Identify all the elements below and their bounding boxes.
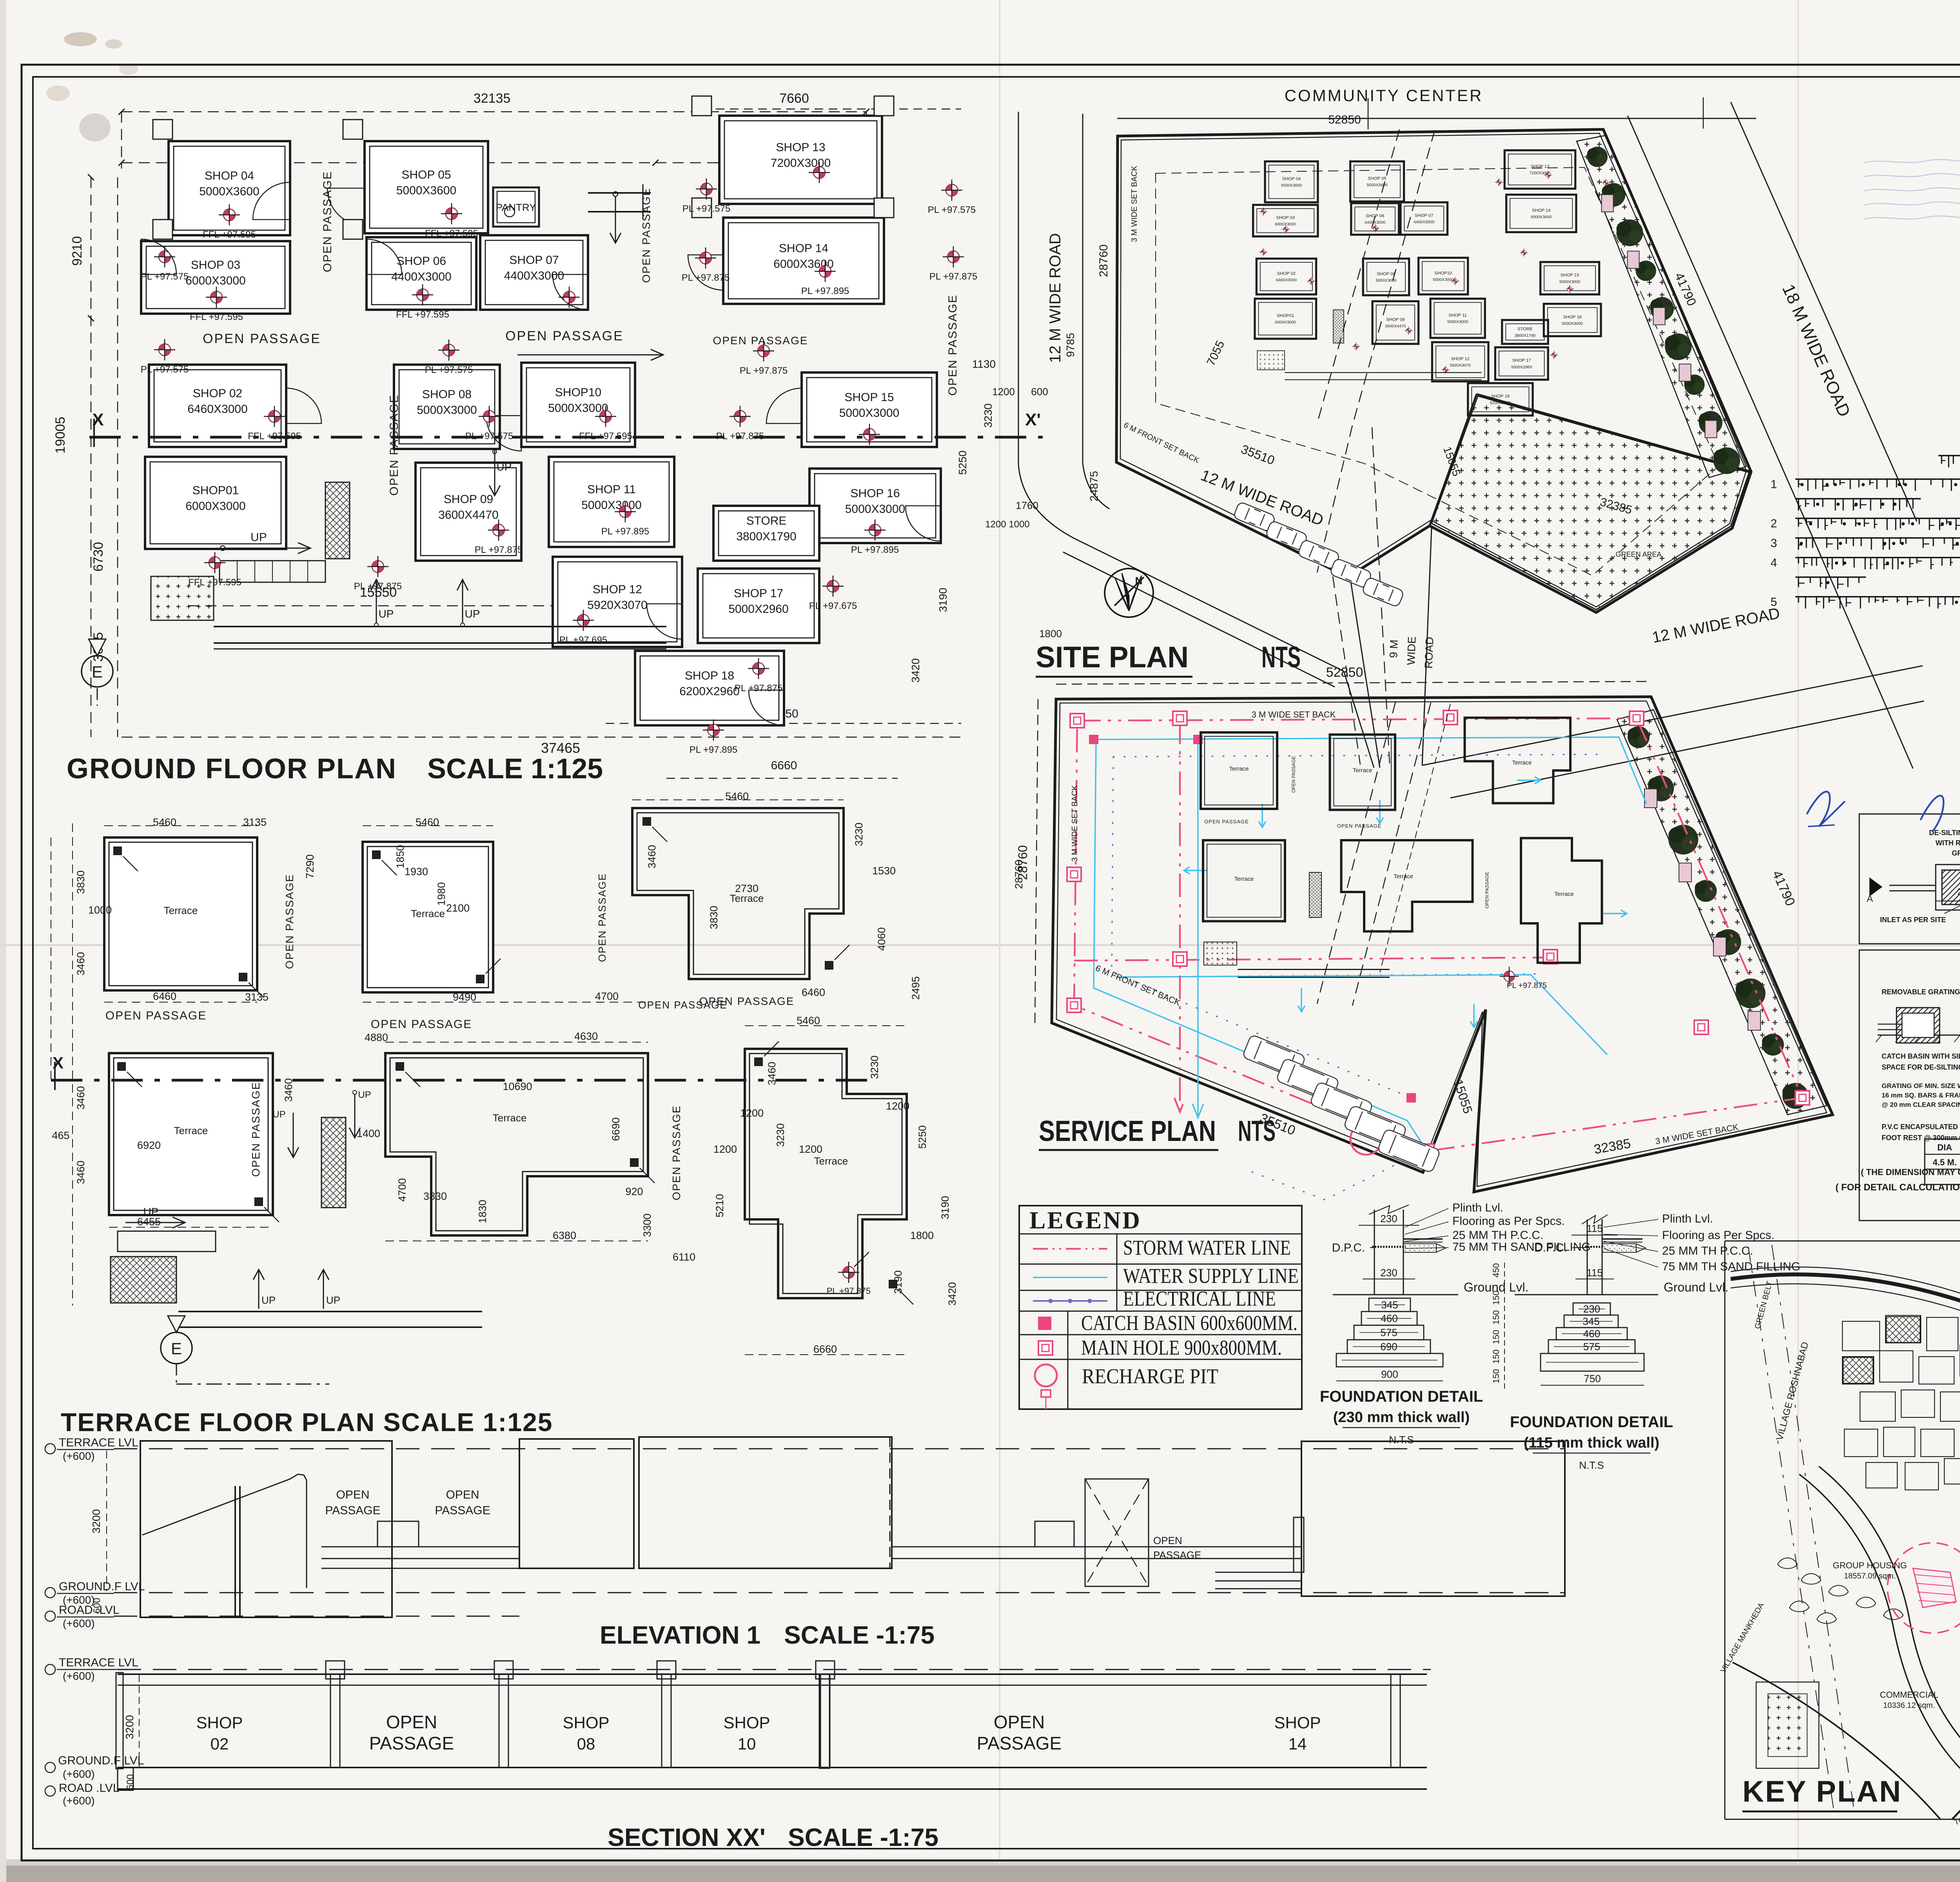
svg-text:SHOP 03: SHOP 03 [191,259,240,272]
svg-text:6730: 6730 [91,542,106,572]
svg-text:OPEN PASSAGE: OPEN PASSAGE [203,331,321,346]
svg-text:6000X3000: 6000X3000 [185,500,246,513]
svg-text:6660: 6660 [771,759,797,772]
svg-text:OPEN PASSAGE: OPEN PASSAGE [283,874,296,969]
svg-text:N.T.S: N.T.S [1579,1459,1604,1471]
svg-text:COMMUNITY CENTER: COMMUNITY CENTER [1285,86,1483,105]
svg-text:PL +97.575: PL +97.575 [141,364,189,375]
svg-text:UP: UP [261,1294,276,1306]
svg-text:OPEN PASSAGE: OPEN PASSAGE [105,1009,207,1022]
svg-text:OPEN: OPEN [386,1712,437,1732]
svg-text:PASSAGE: PASSAGE [977,1733,1062,1753]
svg-text:3600X4470: 3600X4470 [1385,324,1406,329]
svg-text:PL +97.575: PL +97.575 [928,205,976,215]
svg-text:(+600): (+600) [63,1795,95,1807]
svg-text:PL +97.875: PL +97.875 [1507,981,1547,990]
svg-text:3190: 3190 [937,588,949,612]
svg-text:STORE: STORE [1517,327,1533,331]
svg-text:PL +97.875: PL +97.875 [827,1286,871,1296]
svg-text:52850: 52850 [1326,665,1363,680]
svg-text:SHOP 02: SHOP 02 [193,387,242,400]
svg-text:1760: 1760 [1016,500,1038,511]
svg-text:600: 600 [125,1774,136,1790]
svg-text:FFL +97.595: FFL +97.595 [203,229,256,240]
svg-text:25 MM TH P.C.C.: 25 MM TH P.C.C. [1452,1229,1543,1242]
svg-text:TERRACE LVL: TERRACE LVL [59,1436,138,1449]
svg-text:5000X3600: 5000X3600 [1281,183,1302,188]
svg-text:SHOP 09: SHOP 09 [444,493,493,506]
svg-text:Terrace: Terrace [174,1125,208,1137]
svg-text:ROAD .LVL: ROAD .LVL [59,1782,120,1795]
svg-text:FFL +97.595: FFL +97.595 [190,312,243,322]
svg-text:3600X4470: 3600X4470 [438,509,499,521]
svg-text:SHOP01: SHOP01 [1277,314,1294,318]
svg-text:FOUNDATION DETAIL: FOUNDATION DETAIL [1510,1413,1673,1431]
svg-text:4880: 4880 [365,1032,388,1043]
svg-text:18557.09 sqm.: 18557.09 sqm. [1844,1572,1896,1580]
svg-text:OPEN PASSAGE: OPEN PASSAGE [638,999,727,1011]
svg-text:GRATING: GRATING [1952,849,1960,857]
svg-text:6110: 6110 [673,1251,695,1263]
svg-text:3800X1790: 3800X1790 [736,530,797,543]
svg-text:ELECTRICAL LINE: ELECTRICAL LINE [1123,1287,1276,1310]
svg-text:SHOP 12: SHOP 12 [1451,356,1470,361]
svg-text:OPEN PASSAGE: OPEN PASSAGE [670,1105,682,1201]
svg-text:(230 mm thick wall): (230 mm thick wall) [1333,1409,1470,1426]
svg-text:5460: 5460 [153,816,176,828]
svg-text:FFL +97.595: FFL +97.595 [579,431,632,441]
svg-text:32135: 32135 [474,91,511,106]
svg-text:E: E [92,663,103,681]
svg-text:D.P.C.: D.P.C. [1332,1241,1365,1254]
svg-text:ELEVATION 1: ELEVATION 1 [600,1621,760,1649]
svg-text:PL +97.875: PL +97.875 [716,431,764,441]
svg-text:6200X2960: 6200X2960 [679,685,740,698]
svg-text:230: 230 [1380,1267,1397,1279]
svg-text:5000X3000: 5000X3000 [1562,322,1583,326]
svg-text:PL +97.895: PL +97.895 [690,745,738,755]
svg-text:PL +97.875: PL +97.875 [354,581,402,592]
svg-text:2100: 2100 [446,902,470,914]
svg-text:( THE DIMENSION MAY CHANGE AS/: ( THE DIMENSION MAY CHANGE AS/ SITE COND… [1861,1167,1960,1177]
svg-text:6000X3000: 6000X3000 [1275,222,1296,227]
svg-text:1200: 1200 [886,1100,909,1112]
svg-text:COMMERCIAL: COMMERCIAL [1880,1690,1938,1700]
svg-text:MAIN HOLE 900x800MM.: MAIN HOLE 900x800MM. [1081,1336,1282,1359]
svg-text:OPEN: OPEN [1153,1535,1182,1546]
svg-text:SHOP 04: SHOP 04 [1282,176,1301,181]
svg-text:1800: 1800 [1039,628,1062,639]
svg-text:19005: 19005 [53,417,68,454]
svg-text:Terrace: Terrace [411,908,445,919]
svg-text:150: 150 [1491,1330,1501,1344]
svg-text:5250: 5250 [916,1125,928,1149]
svg-text:4700: 4700 [396,1178,408,1202]
svg-text:PL +97.895: PL +97.895 [851,545,899,555]
svg-text:52850: 52850 [1328,113,1361,126]
svg-text:6460X3000: 6460X3000 [187,403,248,416]
svg-text:5: 5 [1771,596,1777,609]
svg-text:5000X3000: 5000X3000 [839,407,900,420]
svg-text:115: 115 [1586,1267,1602,1279]
svg-text:PASSAGE: PASSAGE [325,1504,380,1517]
svg-text:SHOP 15: SHOP 15 [844,391,894,404]
svg-text:SHOP 08: SHOP 08 [1377,272,1396,276]
svg-text:TERRACE LVL: TERRACE LVL [59,1656,138,1669]
svg-text:3420: 3420 [909,658,922,683]
svg-text:UP: UP [465,608,480,620]
svg-text:SHOP 12: SHOP 12 [593,583,642,596]
svg-text:GROUND.F LVL: GROUND.F LVL [58,1754,144,1767]
svg-text:5000X3000: 5000X3000 [548,402,608,415]
svg-text:3830: 3830 [75,870,87,894]
svg-text:OPEN PASSAGE: OPEN PASSAGE [388,394,401,496]
svg-text:SHOP 09: SHOP 09 [1386,317,1405,322]
svg-text:1930: 1930 [405,866,428,877]
svg-text:6455: 6455 [137,1216,161,1228]
svg-text:150: 150 [1491,1310,1501,1325]
svg-text:SHOP 16: SHOP 16 [1563,315,1582,320]
svg-text:6920: 6920 [137,1139,161,1151]
svg-text:1200 1000: 1200 1000 [985,519,1029,530]
svg-text:Plinth Lvl.: Plinth Lvl. [1662,1212,1713,1225]
svg-text:PL +97.875: PL +97.875 [929,271,978,282]
svg-text:PASSAGE: PASSAGE [1153,1549,1201,1561]
svg-text:150: 150 [1491,1291,1501,1305]
svg-text:Terrace: Terrace [1554,891,1574,897]
svg-text:UP: UP [326,1294,340,1306]
svg-text:SHOP 05: SHOP 05 [1368,176,1387,181]
svg-text:Terrace: Terrace [814,1155,848,1167]
svg-text:1200: 1200 [992,386,1015,398]
svg-text:3830: 3830 [708,906,720,929]
svg-text:SHOP 02: SHOP 02 [1277,271,1296,276]
svg-text:UP: UP [358,1090,371,1100]
svg-text:DIA: DIA [1937,1143,1952,1152]
svg-text:SHOP 13: SHOP 13 [776,141,825,154]
svg-text:SCALE -1:75: SCALE -1:75 [788,1823,938,1851]
svg-text:FFL +97.595: FFL +97.595 [425,228,478,239]
svg-text:5250: 5250 [956,451,969,475]
svg-text:3200: 3200 [123,1715,136,1739]
svg-text:UP: UP [250,531,267,544]
svg-text:1200: 1200 [799,1143,822,1155]
svg-text:SHOP 18: SHOP 18 [1491,394,1510,399]
svg-text:SHOP: SHOP [723,1713,770,1732]
svg-text:3230: 3230 [775,1123,786,1147]
svg-text:7660: 7660 [779,91,809,106]
svg-text:REMOVABLE GRATING: REMOVABLE GRATING [1882,988,1960,996]
svg-text:1800: 1800 [910,1230,934,1241]
svg-text:3800X1790: 3800X1790 [1515,334,1536,338]
svg-text:OPEN PASSAGE: OPEN PASSAGE [505,329,624,343]
svg-text:Ground Lvl.: Ground Lvl. [1664,1280,1728,1294]
svg-text:OPEN PASSAGE: OPEN PASSAGE [250,1082,262,1177]
svg-text:Terrace: Terrace [1234,876,1254,882]
svg-text:02: 02 [211,1735,229,1753]
svg-text:28760: 28760 [1016,845,1030,880]
svg-text:1830: 1830 [477,1200,488,1223]
svg-text:TERRACE FLOOR PLAN SCALE 1:1: TERRACE FLOOR PLAN SCALE 1:125 [61,1408,553,1437]
svg-text:SHOP 18: SHOP 18 [685,669,734,682]
svg-text:6660: 6660 [813,1343,837,1355]
svg-text:(+600): (+600) [63,1450,95,1462]
svg-text:GRATING OF MIN. SIZE WITH: GRATING OF MIN. SIZE WITH [1882,1082,1960,1090]
svg-text:3300: 3300 [641,1213,653,1237]
svg-text:Terrace: Terrace [1353,767,1372,774]
svg-text:PL +97.675: PL +97.675 [809,601,857,611]
svg-text:UP: UP [272,1109,285,1120]
svg-text:6000X3000: 6000X3000 [185,274,246,287]
svg-text:1200: 1200 [740,1107,764,1119]
svg-text:SHOP 04: SHOP 04 [205,169,254,182]
svg-text:E: E [171,1339,182,1358]
svg-text:3190: 3190 [939,1196,951,1219]
svg-text:3460: 3460 [75,952,87,976]
svg-text:3230: 3230 [869,1055,880,1079]
svg-text:SHOP 17: SHOP 17 [1512,358,1531,363]
svg-text:SHOP10: SHOP10 [555,386,601,399]
svg-text:Terrace: Terrace [1229,766,1249,772]
svg-text:6200X2960: 6200X2960 [1490,401,1511,405]
svg-text:4: 4 [1771,556,1777,569]
svg-text:28760: 28760 [1097,244,1110,277]
svg-text:FOUNDATION DETAIL: FOUNDATION DETAIL [1320,1388,1483,1405]
svg-text:FOOT REST @ 300mm C/C: FOOT REST @ 300mm C/C [1882,1134,1960,1142]
svg-text:6380: 6380 [553,1230,576,1241]
svg-text:NTS: NTS [1238,1115,1276,1147]
svg-text:PL +97.895: PL +97.895 [801,286,849,296]
svg-text:P.V.C ENCAPSULATED: P.V.C ENCAPSULATED [1882,1123,1958,1131]
svg-text:ROAD: ROAD [1423,637,1436,669]
svg-text:NTS: NTS [1261,641,1301,674]
svg-text:2000: 2000 [1957,887,1960,897]
svg-text:PL +97.575: PL +97.575 [425,365,473,375]
svg-text:SHOP 06: SHOP 06 [397,255,446,268]
svg-text:SHOP 15: SHOP 15 [1561,273,1579,278]
svg-text:PL +97.875: PL +97.875 [735,683,783,694]
svg-text:D.P.C.: D.P.C. [1534,1241,1567,1254]
svg-text:ROAD .LVL: ROAD .LVL [59,1604,120,1617]
svg-text:SHOP 14: SHOP 14 [1532,208,1551,213]
svg-text:STORE: STORE [746,514,787,527]
svg-text:5000X3000: 5000X3000 [581,499,642,512]
svg-text:5920X3070: 5920X3070 [587,599,648,612]
svg-text:GROUND.F LVL: GROUND.F LVL [59,1580,145,1593]
svg-text:6460: 6460 [153,990,176,1002]
svg-text:150: 150 [1491,1369,1501,1384]
svg-text:5460: 5460 [797,1015,820,1026]
svg-text:CATCH BASIN WITH SILT: CATCH BASIN WITH SILT [1882,1052,1960,1060]
svg-text:3230: 3230 [853,823,865,846]
svg-text:PL +97.695: PL +97.695 [559,635,608,645]
svg-text:GROUND FLOOR PLAN: GROUND FLOOR PLAN [67,753,397,785]
svg-text:9785: 9785 [1064,333,1076,357]
svg-text:3460: 3460 [646,845,658,868]
svg-text:PL +97.575: PL +97.575 [465,431,514,441]
svg-text:SHOP 11: SHOP 11 [587,483,636,496]
svg-text:@ 20 mm CLEAR SPACING: @ 20 mm CLEAR SPACING [1882,1101,1960,1108]
svg-text:OPEN PASSAGE: OPEN PASSAGE [1204,819,1249,825]
svg-text:RECHARGE PIT: RECHARGE PIT [1082,1364,1218,1388]
svg-text:FFL +97.595: FFL +97.595 [248,431,301,441]
svg-text:5000X3000: 5000X3000 [1559,280,1581,284]
svg-text:OPEN: OPEN [446,1488,479,1501]
svg-text:5000X3600: 5000X3600 [199,185,260,198]
svg-text:SHOP 03: SHOP 03 [1276,215,1295,220]
svg-text:230: 230 [1380,1213,1397,1224]
svg-text:SHOP 16: SHOP 16 [850,487,900,500]
svg-text:GROUP HOUSING: GROUP HOUSING [1833,1560,1907,1570]
svg-text:SCALE 1:125: SCALE 1:125 [427,753,603,785]
svg-text:SHOP 08: SHOP 08 [422,388,472,401]
svg-text:3135: 3135 [243,816,267,828]
svg-text:115: 115 [1586,1223,1602,1234]
svg-text:6690: 6690 [610,1117,622,1141]
svg-text:SHOP 11: SHOP 11 [1448,313,1467,318]
svg-text:SHOP10: SHOP10 [1434,271,1452,276]
svg-text:750: 750 [1584,1373,1601,1384]
svg-text:PL +97.875: PL +97.875 [740,365,788,376]
svg-text:FFL +97.595: FFL +97.595 [188,577,241,588]
svg-text:SHOP 13: SHOP 13 [1531,164,1550,169]
svg-text:920: 920 [625,1186,643,1197]
svg-text:1: 1 [1771,478,1777,491]
svg-text:Flooring as Per Spcs.: Flooring as Per Spcs. [1662,1229,1775,1242]
svg-text:3460: 3460 [766,1062,778,1085]
svg-text:(115 mm thick wall): (115 mm thick wall) [1524,1435,1659,1451]
svg-text:5000X3600: 5000X3600 [396,184,457,197]
svg-text:3135: 3135 [245,991,269,1003]
svg-text:(+600): (+600) [63,1670,95,1682]
svg-text:3190: 3190 [892,1270,904,1294]
svg-text:9490: 9490 [453,991,476,1003]
svg-text:3230: 3230 [982,403,994,428]
svg-text:1980: 1980 [436,882,447,906]
svg-text:PANTRY: PANTRY [495,202,536,213]
svg-text:OPEN PASSAGE: OPEN PASSAGE [321,171,334,272]
svg-text:25 MM TH P.C.C.: 25 MM TH P.C.C. [1662,1244,1753,1257]
svg-text:OPEN PASSAGE: OPEN PASSAGE [1485,872,1490,908]
svg-text:12 M WIDE ROAD: 12 M WIDE ROAD [1047,233,1064,363]
svg-text:75 MM TH SAND FILLING: 75 MM TH SAND FILLING [1452,1241,1591,1253]
svg-text:2: 2 [1771,517,1777,530]
svg-text:9 M: 9 M [1387,639,1400,658]
svg-text:6460: 6460 [802,986,825,998]
svg-text:1130: 1130 [972,358,996,370]
svg-text:450: 450 [1491,1263,1501,1278]
svg-text:Plinth Lvl.: Plinth Lvl. [1452,1201,1503,1214]
svg-text:150: 150 [1491,1350,1501,1364]
svg-text:14: 14 [1289,1735,1307,1753]
svg-text:5460: 5460 [416,816,439,828]
svg-text:3: 3 [1771,537,1777,550]
svg-text:CATCH BASIN 600x600MM.: CATCH BASIN 600x600MM. [1081,1311,1298,1335]
svg-text:5000X3000: 5000X3000 [1447,320,1468,324]
svg-text:PL +97.895: PL +97.895 [601,526,650,537]
svg-text:5920X3070: 5920X3070 [1450,363,1471,368]
svg-text:4400X3000: 4400X3000 [504,269,564,282]
svg-text:SHOP: SHOP [1274,1713,1321,1732]
svg-text:UP: UP [379,608,394,620]
svg-text:OPEN PASSAGE: OPEN PASSAGE [371,1018,472,1031]
svg-text:2495: 2495 [910,976,922,1000]
svg-text:SHOP 17: SHOP 17 [734,587,783,600]
svg-text:A: A [1867,894,1873,904]
svg-text:KEY PLAN: KEY PLAN [1742,1775,1902,1808]
svg-text:WITH REMOVABLE: WITH REMOVABLE [1936,839,1960,847]
svg-text:N: N [1135,575,1143,587]
svg-text:600: 600 [92,1598,102,1613]
svg-text:Terrace: Terrace [1394,873,1413,880]
svg-text:4400X3000: 4400X3000 [1414,220,1435,225]
svg-text:WIDE: WIDE [1405,636,1418,665]
svg-text:OPEN PASSAGE: OPEN PASSAGE [713,334,808,347]
svg-text:5000X2960: 5000X2960 [1511,365,1532,369]
svg-text:X': X' [1025,410,1041,429]
svg-text:3 M WIDE SET BACK: 3 M WIDE SET BACK [1130,165,1139,242]
svg-text:PL +97.575: PL +97.575 [682,203,731,214]
svg-text:4400X3000: 4400X3000 [1365,221,1386,225]
svg-text:5000X2960: 5000X2960 [728,603,789,616]
svg-text:900: 900 [1381,1368,1398,1380]
svg-text:5210: 5210 [714,1194,726,1217]
svg-text:(+600): (+600) [63,1768,95,1780]
svg-text:OPEN: OPEN [994,1712,1045,1732]
svg-text:Terrace: Terrace [1512,759,1532,766]
svg-text:9210: 9210 [70,236,85,266]
svg-text:OPEN PASSAGE: OPEN PASSAGE [1291,756,1296,793]
svg-text:SHOP01: SHOP01 [192,484,239,497]
svg-text:3830: 3830 [423,1190,447,1202]
svg-text:3420: 3420 [946,1282,958,1306]
svg-text:4700: 4700 [595,990,619,1002]
svg-text:SCALE -1:75: SCALE -1:75 [784,1621,935,1649]
svg-text:PL +97.875: PL +97.875 [682,272,730,283]
svg-text:SHOP 05: SHOP 05 [401,169,451,182]
svg-text:3200: 3200 [90,1509,102,1533]
svg-text:1400: 1400 [357,1128,380,1139]
svg-text:4400X3000: 4400X3000 [391,271,452,283]
svg-text:10336.12 sqm.: 10336.12 sqm. [1883,1701,1935,1710]
svg-text:SHOP 14: SHOP 14 [779,242,828,255]
svg-text:5000X3000: 5000X3000 [417,404,477,417]
svg-text:1200: 1200 [713,1143,737,1155]
svg-text:6000X3600: 6000X3600 [1531,215,1552,219]
svg-text:N.T.S: N.T.S [1389,1434,1414,1446]
svg-text:OPEN: OPEN [336,1488,369,1501]
svg-text:PASSAGE: PASSAGE [369,1733,454,1753]
svg-text:600: 600 [1031,386,1048,398]
svg-text:PL +97.575: PL +97.575 [141,271,189,282]
svg-text:3 M WIDE SET BACK: 3 M WIDE SET BACK [1071,785,1079,862]
svg-text:3460: 3460 [75,1086,87,1110]
svg-text:SHOP 07: SHOP 07 [1415,213,1434,218]
svg-text:OPEN PASSAGE: OPEN PASSAGE [596,873,608,962]
svg-text:1530: 1530 [872,865,896,877]
svg-text:OPEN PASSAGE: OPEN PASSAGE [1337,823,1382,829]
svg-text:3460: 3460 [283,1078,294,1102]
svg-text:3 M WIDE SET BACK: 3 M WIDE SET BACK [1252,710,1336,719]
svg-text:SITE PLAN: SITE PLAN [1036,641,1189,674]
svg-text:GREEN AREA: GREEN AREA [1615,550,1661,558]
svg-text:6460X3000: 6460X3000 [1276,278,1297,282]
svg-text:4630: 4630 [574,1030,598,1042]
svg-text:5000X3000: 5000X3000 [845,503,906,516]
svg-text:INLET AS PER SITE: INLET AS PER SITE [1880,916,1946,924]
svg-text:5000X3000: 5000X3000 [1433,278,1454,282]
svg-text:UP: UP [497,461,512,473]
